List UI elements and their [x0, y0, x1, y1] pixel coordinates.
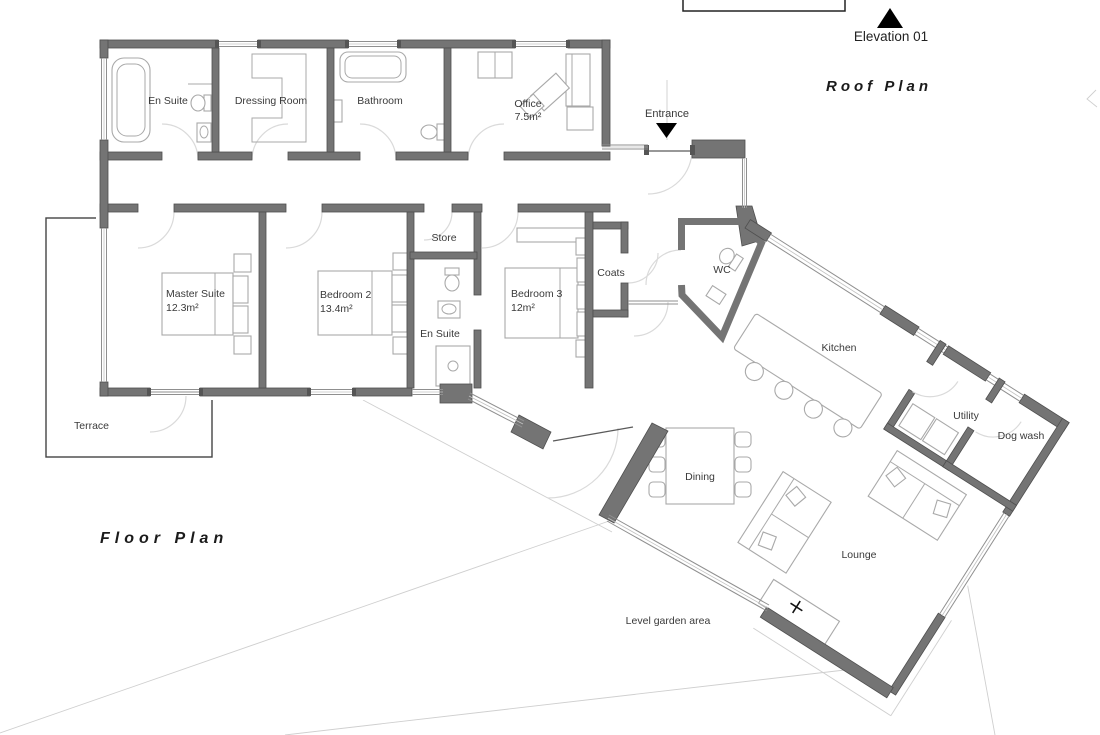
label-store: Store [431, 232, 456, 244]
label-master-area: 12.3m² [166, 302, 199, 314]
roof-plan-title: Roof Plan [826, 78, 932, 95]
label-terrace: Terrace [74, 420, 109, 432]
label-wc: WC [713, 264, 731, 276]
label-garden: Level garden area [626, 615, 711, 627]
label-bedroom3-area: 12m² [511, 302, 535, 314]
label-office: Office [514, 98, 541, 110]
floor-plan-page: En Suite Dressing Room Bathroom Office 7… [0, 0, 1100, 735]
floor-plan-title: Floor Plan [100, 530, 228, 547]
elevation-title: Elevation 01 [854, 29, 928, 44]
label-entrance: Entrance [645, 108, 689, 120]
edge-artifact-icon [1087, 90, 1097, 107]
label-ensuite-top: En Suite [148, 95, 188, 107]
label-ensuite2: En Suite [420, 328, 460, 340]
label-lounge: Lounge [841, 549, 876, 561]
label-bedroom2-area: 13.4m² [320, 303, 353, 315]
label-utility: Utility [953, 410, 979, 422]
label-office-area: 7.5m² [515, 111, 542, 123]
label-bathroom: Bathroom [357, 95, 403, 107]
label-kitchen: Kitchen [821, 342, 856, 354]
label-dining: Dining [685, 471, 715, 483]
label-dogwash: Dog wash [998, 430, 1045, 442]
floor-plan-drawing: En Suite Dressing Room Bathroom Office 7… [0, 0, 1100, 735]
label-dressing: Dressing Room [235, 95, 308, 107]
label-master: Master Suite [166, 288, 225, 300]
entrance-arrow-icon [656, 123, 677, 138]
label-bedroom3: Bedroom 3 [511, 288, 563, 300]
building-underlays [96, 36, 1072, 702]
roof-plan-frame [683, 0, 845, 11]
label-coats: Coats [597, 267, 624, 279]
elevation-marker-icon [877, 8, 903, 28]
label-bedroom2: Bedroom 2 [320, 289, 372, 301]
